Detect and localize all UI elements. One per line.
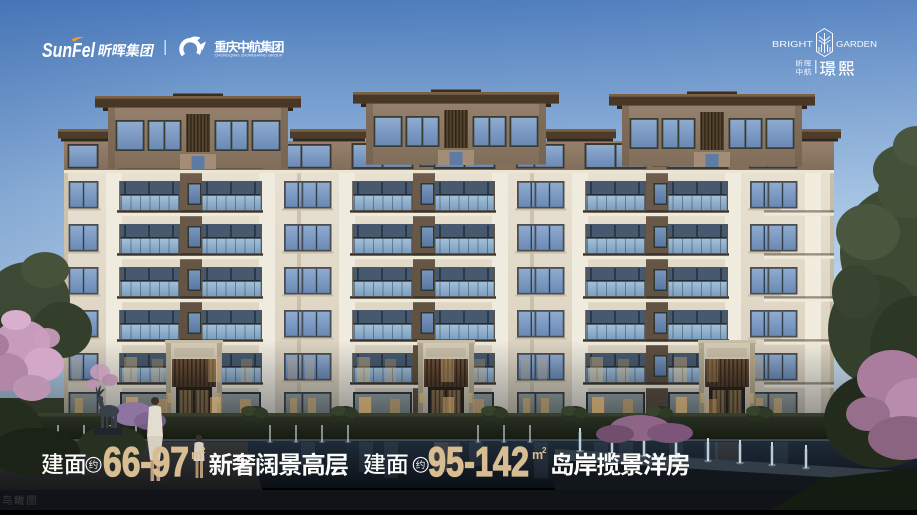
svg-text:95-142: 95-142 [428, 438, 529, 485]
svg-text:BRIGHT: BRIGHT [772, 39, 814, 49]
svg-text:66-97: 66-97 [103, 438, 189, 485]
svg-text:2: 2 [542, 446, 547, 455]
svg-text:2: 2 [201, 446, 206, 455]
svg-text:CHONGQING ZHONGHANG GROUP: CHONGQING ZHONGHANG GROUP [215, 54, 284, 58]
svg-text:GARDEN: GARDEN [836, 39, 877, 49]
svg-text:SunFel: SunFel [42, 39, 96, 62]
